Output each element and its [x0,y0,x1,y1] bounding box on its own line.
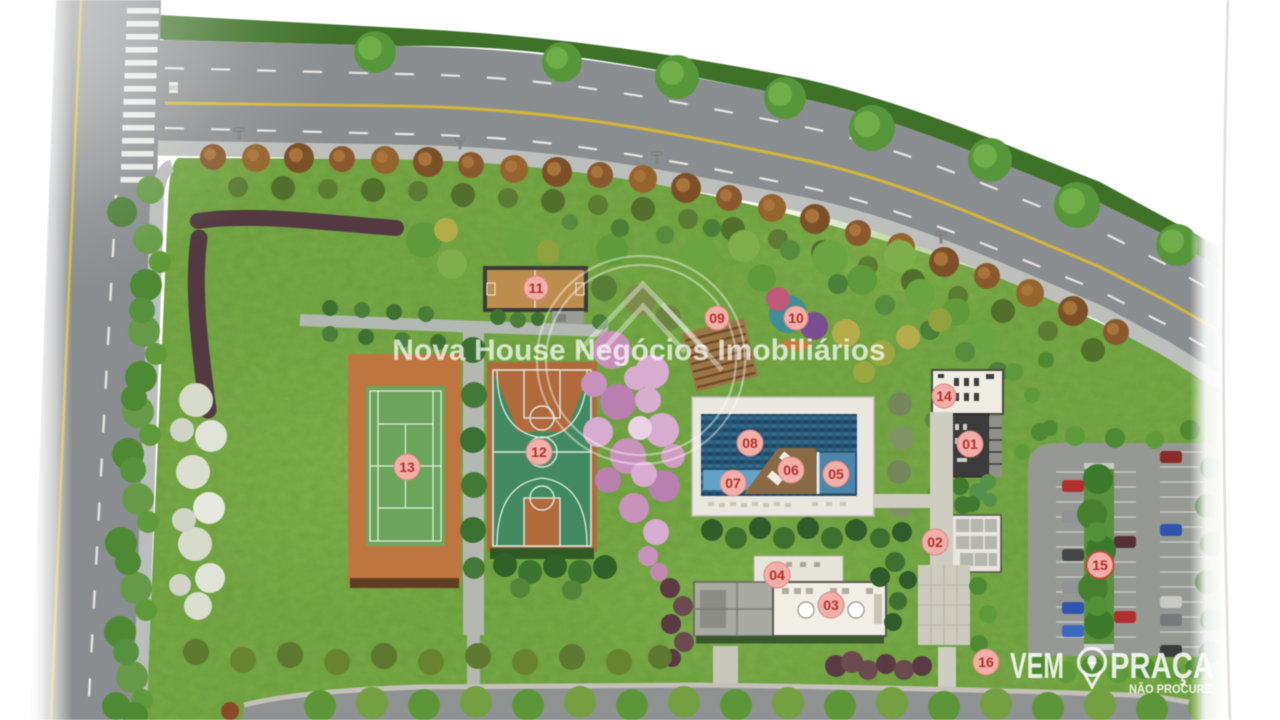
svg-text:07: 07 [725,475,741,491]
svg-text:12: 12 [531,444,547,460]
svg-text:13: 13 [399,459,415,475]
svg-text:Nova House Negócios Imobiliári: Nova House Negócios Imobiliários [392,334,885,367]
svg-text:16: 16 [978,654,994,670]
svg-text:15: 15 [1092,557,1108,573]
svg-text:05: 05 [828,466,844,482]
svg-text:09: 09 [709,310,725,326]
svg-text:10: 10 [788,310,804,326]
svg-text:03: 03 [823,597,839,613]
svg-text:14: 14 [936,388,952,404]
svg-text:06: 06 [783,462,799,478]
svg-text:11: 11 [529,280,544,296]
svg-text:VEM: VEM [1010,645,1064,686]
svg-text:04: 04 [769,567,785,583]
svg-text:02: 02 [927,534,943,550]
svg-text:08: 08 [742,435,758,451]
svg-text:01: 01 [962,436,978,452]
